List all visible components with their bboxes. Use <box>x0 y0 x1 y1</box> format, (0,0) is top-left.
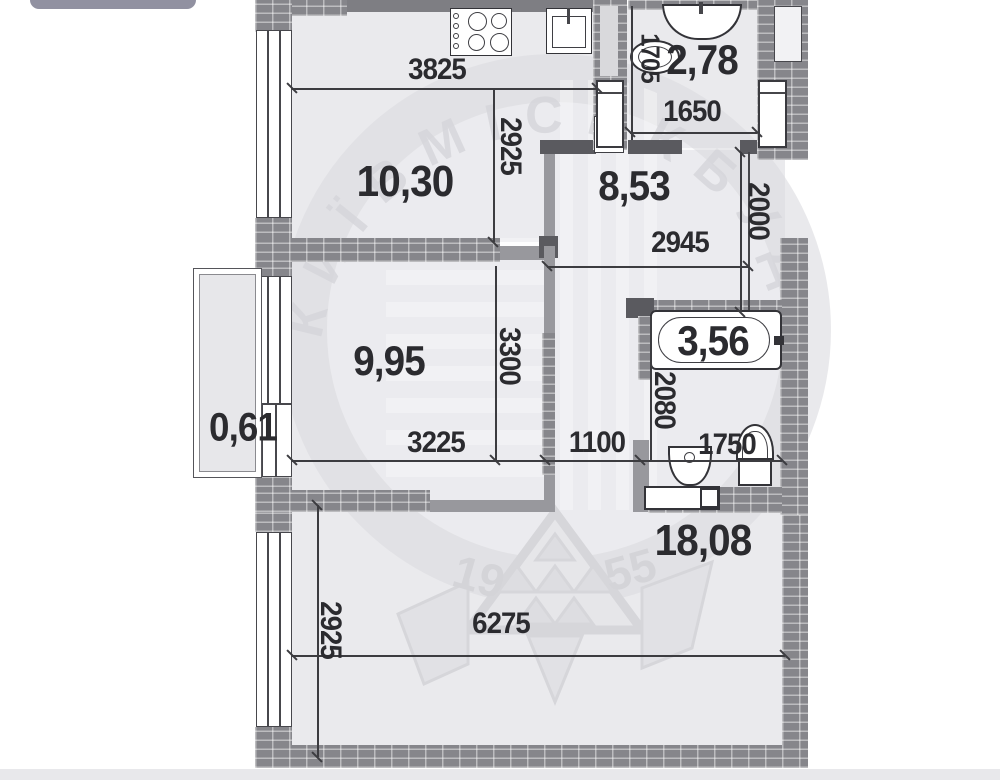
dimension-label-kitchen-depth: 2925 <box>493 117 527 175</box>
wall-cap <box>628 140 682 154</box>
dimension-label-bath-depth: 2080 <box>647 371 681 429</box>
room-label-wc: 2,78 <box>666 36 738 84</box>
top-toolbar-pill <box>30 0 196 9</box>
wall <box>544 152 555 246</box>
wall <box>255 745 808 768</box>
dimension-line <box>545 460 640 462</box>
dimension-label-wc-depth: 1705 <box>635 33 666 83</box>
living-window <box>256 532 292 727</box>
dimension-label-bedroom-width: 3225 <box>407 426 465 460</box>
dimension-label-bath-width: 1750 <box>698 428 756 462</box>
duct-opening <box>774 6 802 62</box>
room-label-living: 18,08 <box>655 516 752 566</box>
stove-knob <box>453 43 459 49</box>
room-label-bedroom: 9,95 <box>353 337 425 385</box>
window-glazing-line <box>279 30 281 218</box>
wall <box>255 238 500 262</box>
wall <box>430 500 546 512</box>
wall <box>780 238 808 515</box>
stove-burner <box>468 12 487 31</box>
stove-burner <box>468 34 485 51</box>
dimension-label-kitchen-width: 3825 <box>408 53 466 87</box>
floorplan-canvas: КИЇВМІСЬКБУД 19 55 <box>0 0 1000 780</box>
dimension-label-hall-depth: 2000 <box>741 182 775 240</box>
dimension-line <box>292 460 545 462</box>
room-label-balcony: 0,61 <box>209 406 277 451</box>
dimension-label-hall-width: 2945 <box>651 226 709 260</box>
vent-shaft-divider <box>760 92 785 94</box>
room-label-hall: 8,53 <box>598 162 670 210</box>
dimension-line <box>547 266 748 268</box>
kitchen-sink-tap <box>567 8 570 24</box>
wall <box>544 246 555 336</box>
stove-burner <box>490 33 509 52</box>
window-glazing-line <box>267 30 269 218</box>
wall <box>782 515 808 768</box>
stove-knob <box>453 13 459 19</box>
room-label-bath: 3,56 <box>677 317 749 365</box>
window-glazing-line <box>267 276 269 404</box>
washbasin-tap <box>699 2 703 14</box>
dimension-label-bedroom-depth: 3300 <box>492 327 526 385</box>
dimension-line <box>631 6 633 140</box>
dimension-label-living-depth: 2925 <box>313 601 347 659</box>
window-glazing-line <box>279 532 281 727</box>
dimension-line <box>292 88 597 90</box>
window-glazing-line <box>267 532 269 727</box>
dimension-label-hall-passage: 1100 <box>569 426 625 460</box>
dimension-label-living-width: 6275 <box>472 607 530 641</box>
stove-burner <box>491 13 507 29</box>
dimension-line <box>292 655 785 657</box>
window-glazing-line <box>279 276 281 404</box>
room-label-kitchen: 10,30 <box>357 157 454 207</box>
entry-door-leaf <box>600 6 618 76</box>
wall <box>542 333 555 475</box>
bath-door-hinge <box>700 488 719 508</box>
wall <box>255 490 430 512</box>
wall <box>255 0 292 32</box>
bottom-strip <box>0 769 1000 780</box>
stove-knob <box>453 23 459 29</box>
vent-shaft <box>758 80 787 148</box>
dimension-line <box>630 132 757 134</box>
bath-toilet-base <box>738 458 772 486</box>
stove-knob <box>453 33 459 39</box>
kitchen-window <box>256 30 292 218</box>
bathtub-tap <box>774 336 784 345</box>
wall-cap <box>540 140 596 154</box>
dimension-label-wc-width: 1650 <box>663 95 721 129</box>
